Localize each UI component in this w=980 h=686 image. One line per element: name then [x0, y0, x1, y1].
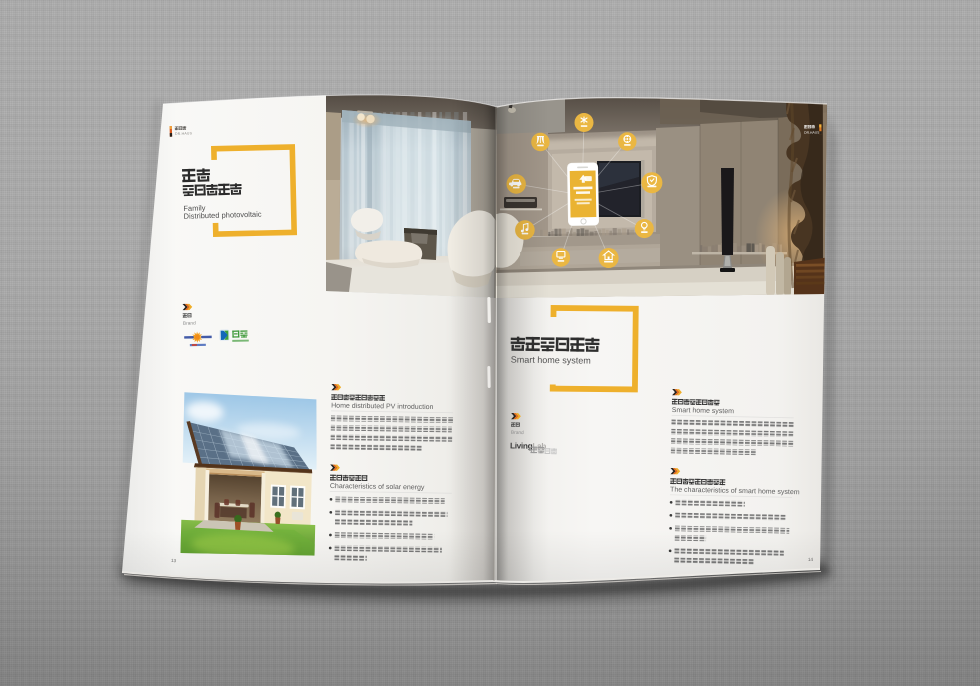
- svg-text:Brand: Brand: [183, 320, 196, 326]
- svg-text:LivingLab: LivingLab: [510, 441, 546, 451]
- svg-text:Smart home system: Smart home system: [672, 407, 735, 415]
- svg-text:Brand: Brand: [511, 430, 524, 436]
- svg-text:Smart home system: Smart home system: [511, 355, 591, 366]
- svg-text:Characteristics of solar energ: Characteristics of solar energy: [330, 483, 425, 491]
- svg-text:DR.HAUS: DR.HAUS: [804, 131, 820, 135]
- svg-text:DR.HAUS: DR.HAUS: [175, 131, 193, 136]
